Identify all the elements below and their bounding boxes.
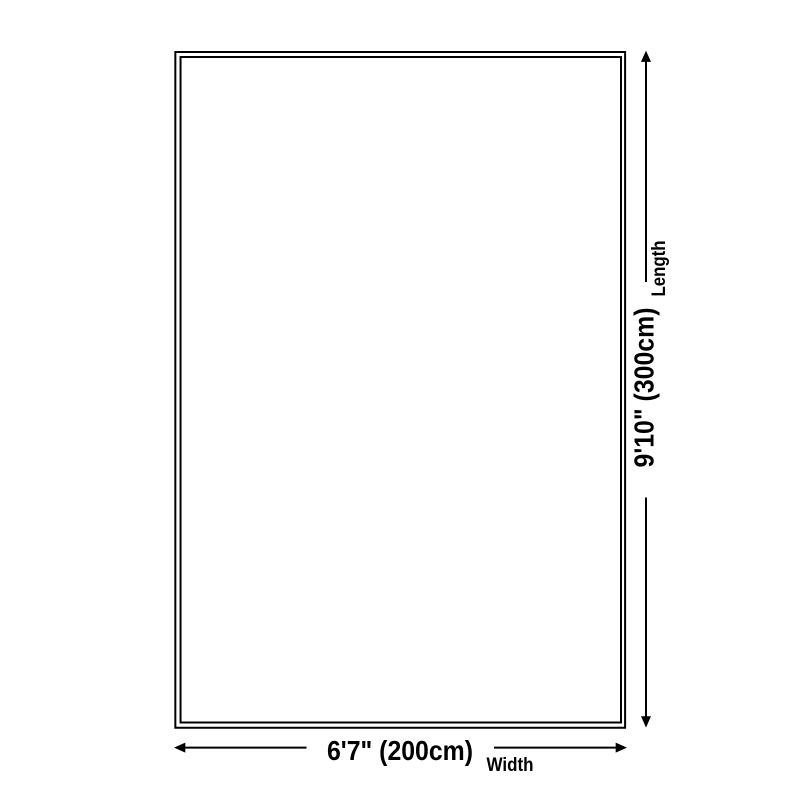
- svg-text:6'7" (200cm): 6'7" (200cm): [327, 735, 473, 766]
- svg-text:Length: Length: [649, 241, 670, 297]
- svg-text:9'10" (300cm): 9'10" (300cm): [629, 308, 660, 468]
- svg-text:Width: Width: [487, 755, 534, 776]
